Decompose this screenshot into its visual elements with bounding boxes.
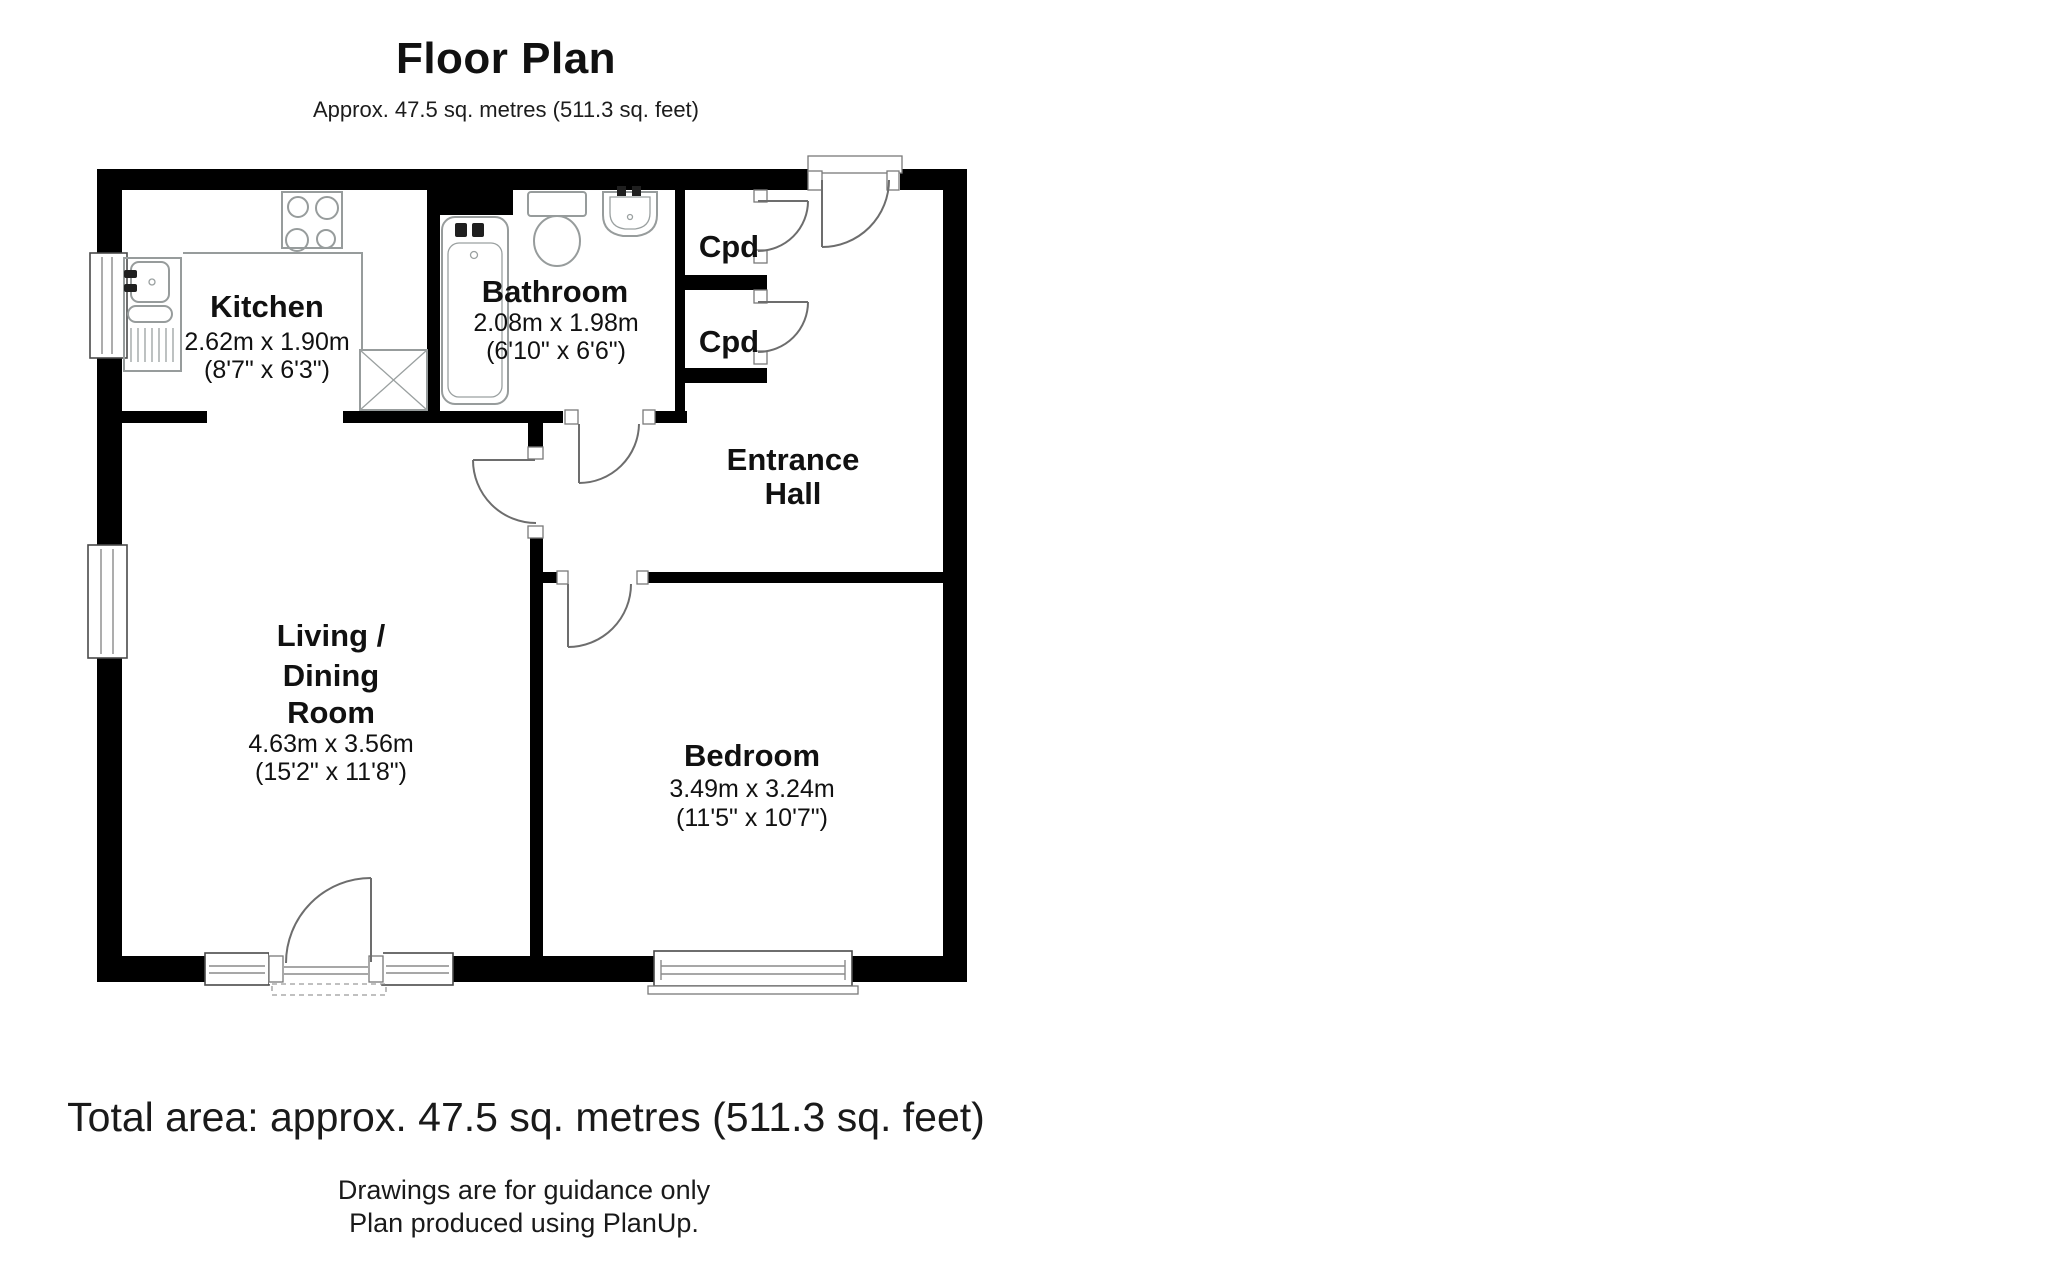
living-line1: Living / — [277, 618, 386, 653]
wall-kitchen-bathroom — [427, 190, 440, 423]
kitchen-label: Kitchen 2.62m x 1.90m (8'7" x 6'3") — [184, 289, 349, 384]
bedroom-window — [648, 951, 858, 994]
living-room-window — [88, 545, 127, 658]
living-line3: Room — [287, 695, 375, 730]
hob-icon — [282, 192, 342, 251]
wall-living-hall — [530, 538, 543, 956]
bedroom-door — [557, 571, 648, 647]
bathroom-label: Bathroom 2.08m x 1.98m (6'10" x 6'6") — [473, 274, 638, 365]
living-size-metric: 4.63m x 3.56m — [248, 730, 413, 758]
wall-cupboard-bottom — [685, 368, 767, 383]
floor-plan-page: Floor Plan Approx. 47.5 sq. metres (511.… — [0, 0, 2048, 1262]
cupboard-bottom-label: Cpd — [699, 324, 759, 359]
cupboard-bottom-door — [754, 290, 808, 364]
kitchen-sink-icon — [124, 258, 181, 371]
cupboard-top-label: Cpd — [699, 229, 759, 264]
bathroom-door — [565, 410, 655, 483]
basin-icon — [603, 186, 657, 236]
bedroom-size-metric: 3.49m x 3.24m — [669, 775, 834, 803]
wall-top-left — [97, 169, 808, 190]
living-room-bottom-window-right — [382, 953, 453, 985]
wall-kitchen-bottom-right — [343, 411, 563, 423]
bathroom-duct — [440, 190, 513, 215]
wall-right — [943, 169, 967, 982]
wall-left-lower — [97, 658, 122, 982]
bathroom-name: Bathroom — [482, 274, 628, 309]
entrance-door — [808, 156, 902, 247]
entrance-hall-line2: Hall — [765, 476, 822, 511]
kitchen-size-metric: 2.62m x 1.90m — [184, 328, 349, 356]
patio-door — [269, 878, 386, 995]
bathroom-size-imperial: (6'10" x 6'6") — [486, 337, 626, 365]
bedroom-label: Bedroom 3.49m x 3.24m (11'5" x 10'7") — [669, 738, 834, 832]
bedroom-size-imperial: (11'5" x 10'7") — [676, 804, 828, 832]
total-area-text: Total area: approx. 47.5 sq. metres (511… — [0, 1094, 1052, 1141]
bathroom-size-metric: 2.08m x 1.98m — [473, 309, 638, 337]
living-room-bottom-window-left — [205, 953, 269, 985]
wall-left-upper — [97, 169, 122, 255]
toilet-icon — [528, 192, 586, 266]
entrance-hall-line1: Entrance — [727, 442, 860, 477]
room-labels: Kitchen 2.62m x 1.90m (8'7" x 6'3") Bath… — [184, 229, 859, 832]
kitchen-size-imperial: (8'7" x 6'3") — [204, 356, 330, 384]
kitchen-window — [90, 253, 127, 358]
living-room-door — [473, 447, 543, 538]
kitchen-name: Kitchen — [210, 289, 324, 324]
wall-left-middle — [97, 357, 122, 545]
disclaimer-text: Drawings are for guidance only — [0, 1174, 1048, 1207]
wall-hall-stub — [528, 423, 543, 447]
wall-bedroom-top-left — [543, 572, 557, 583]
entrance-hall-label: Entrance Hall — [727, 442, 860, 511]
wall-kitchen-bottom-left — [122, 411, 207, 423]
credit-text: Plan produced using PlanUp. — [0, 1207, 1048, 1240]
cupboard-top-door — [754, 190, 808, 263]
living-dining-label: Living / Dining Room 4.63m x 3.56m (15'2… — [248, 618, 413, 786]
bedroom-name: Bedroom — [684, 738, 820, 773]
wall-bathroom-right — [675, 190, 685, 423]
living-line2: Dining — [283, 658, 379, 693]
living-size-imperial: (15'2" x 11'8") — [255, 758, 407, 786]
footnote-block: Drawings are for guidance only Plan prod… — [0, 1174, 1048, 1241]
wall-cupboard-divider — [685, 275, 767, 290]
floor-plan-drawing: Kitchen 2.62m x 1.90m (8'7" x 6'3") Bath… — [0, 0, 2048, 1262]
appliance-space-icon — [360, 350, 427, 410]
wall-bedroom-top-right — [648, 572, 943, 583]
